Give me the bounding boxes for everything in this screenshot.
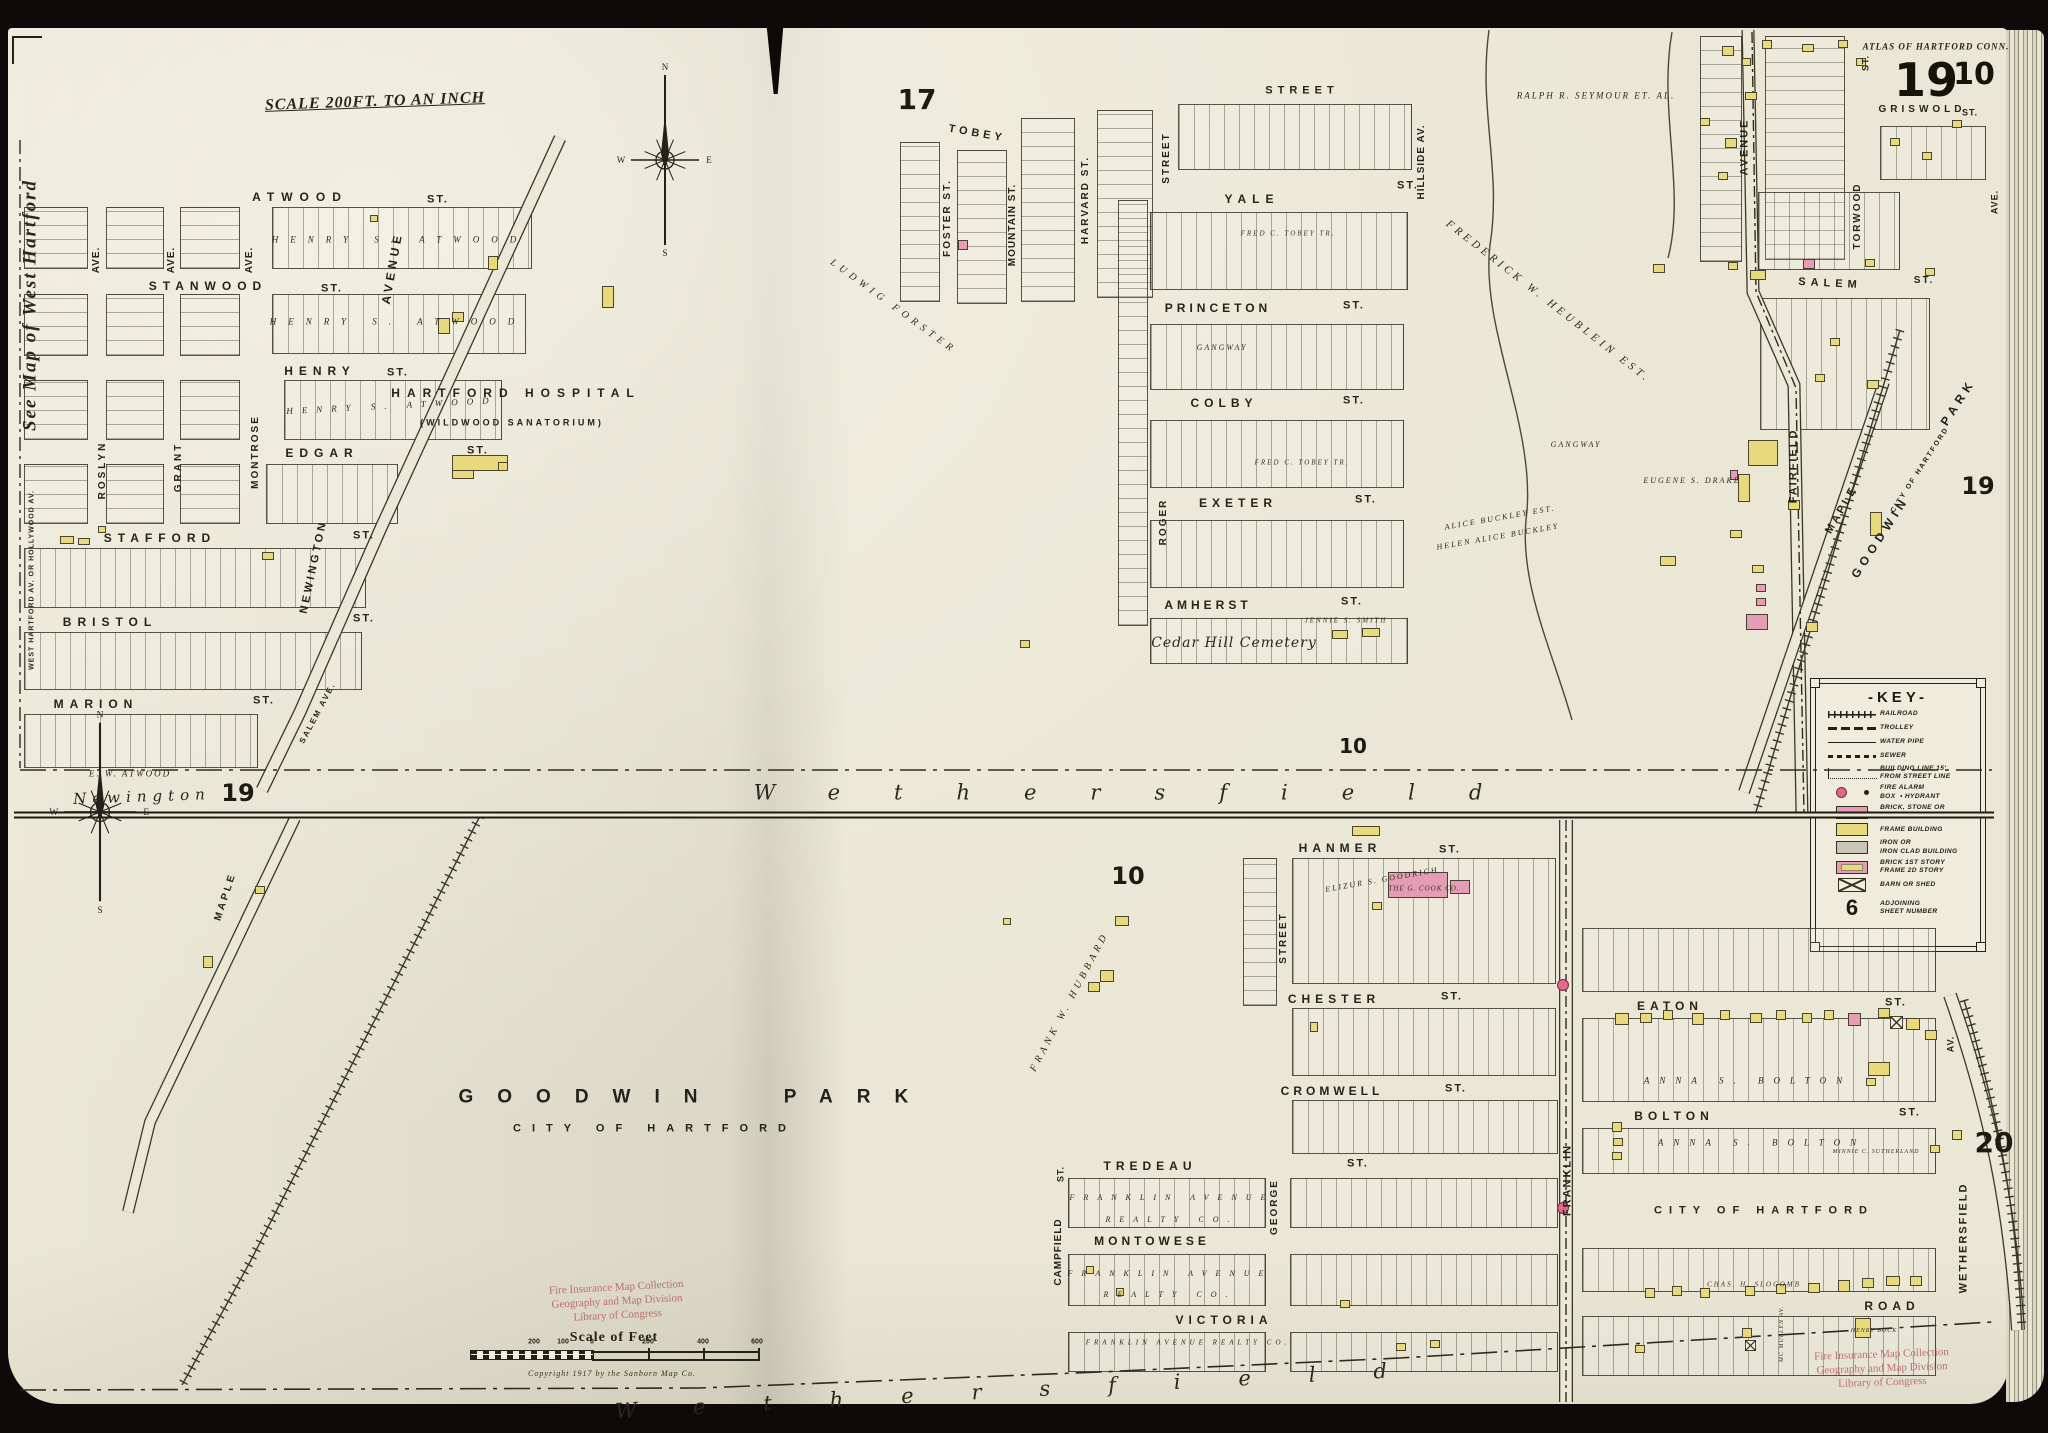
frame-building [1750,270,1766,280]
frame-building [1722,46,1734,56]
street-label: ST. [1445,1084,1467,1095]
frame-building [255,886,265,894]
map-label: WEST HARTFORD AV. OR HOLLYWOOD AV. [29,490,36,670]
brook-stream [1486,30,1572,720]
street-label: GEORGE [1270,1179,1280,1235]
street-label: FAIRFIELD [1789,429,1800,504]
street-label: MONTOWESE [1094,1235,1210,1247]
owner-label: REALTY CO. [1106,1216,1239,1224]
street-label: ST. [1343,396,1365,407]
frame-building [1615,1013,1629,1025]
street-label: ST. [253,696,275,707]
map-label: CITY OF HARTFORD [513,1124,797,1135]
frame-building [1925,1030,1937,1040]
frame-building [1100,970,1114,982]
frame-building [1742,58,1751,66]
frame-building [1745,92,1757,100]
scale-bar-number: 200 [528,1339,540,1346]
frame-building [1640,1013,1652,1023]
frame-building [1340,1300,1350,1308]
street-label: ROSLYN [98,441,108,500]
svg-text:E: E [143,808,149,818]
street-label: AVE. [92,247,102,274]
owner-label: MC MULLEN AV. [1779,1306,1785,1362]
owner-label: FRANKLIN AVENUE [1068,1270,1273,1278]
owner-label: Copyright 1917 by the Sanborn Map Co. [528,1370,696,1378]
frame-building [1750,1013,1762,1023]
frame-building [1115,916,1129,926]
scale-bar-number: 400 [697,1339,709,1346]
brick-building [1756,598,1766,606]
frame-building [262,552,274,560]
street-label: MOUNTAIN ST. [1008,184,1018,266]
frame-building [1952,120,1962,128]
frame-building [1725,138,1737,148]
frame-building [452,470,474,479]
frame-building [370,215,378,222]
frame-building [1730,530,1742,538]
frame-building [1660,556,1676,566]
frame-building [1802,1013,1812,1023]
frame-building [1862,1278,1874,1288]
street-label: ST. [321,284,343,295]
owner-label: HENRY BOCK [1851,1328,1897,1334]
street-label: ST. [1914,276,1934,286]
frame-building [1653,264,1665,273]
library-of-congress-stamp: Fire Insurance Map CollectionGeography a… [549,1278,686,1326]
frame-building [1700,1288,1710,1298]
frame-building [203,956,213,968]
frame-building [1003,918,1011,925]
street-label: FRANKLIN [1563,1144,1574,1216]
svg-text:W: W [617,155,626,165]
scale-bar-number: 600 [751,1339,763,1346]
svg-text:N: N [97,711,104,721]
street-label: HANMER [1299,842,1382,854]
map-label: GOODWIN [459,1088,722,1107]
street-label: EDGAR [285,447,358,459]
frame-building [1906,1018,1920,1030]
road-surface [128,818,295,1212]
map-label: PARK [784,1088,932,1107]
street-label: AVE. [245,247,255,274]
street-label: HILLSIDE AV. [1417,125,1427,200]
street-label: AMHERST [1164,599,1251,611]
town-label: Wethersfield [754,783,1537,804]
street-label: CAMPFIELD [1054,1218,1064,1285]
frame-building [1838,1280,1850,1292]
frame-building [1878,1008,1890,1018]
map-label: 10 [1953,60,1995,90]
street-label: ST. [1962,109,1978,118]
frame-building [1838,40,1848,48]
street-label: CHESTER [1288,993,1380,1005]
street-label: AVE. [167,247,177,274]
frame-building [1612,1152,1622,1160]
street-label: HENRY [284,365,356,377]
frame-building [1830,338,1840,346]
frame-building [1020,640,1030,648]
frame-building [1613,1138,1623,1146]
map-linework: NSEWNSEW [0,0,2048,1433]
map-label: 19 [221,781,254,805]
frame-building [1728,262,1738,270]
street-label: EXETER [1199,497,1277,509]
frame-building [1802,44,1814,52]
owner-label: FRANKLIN AVENUE [1070,1194,1275,1202]
frame-building [1645,1288,1655,1298]
owner-label: JENNIE S. SMITH [1305,618,1388,625]
frame-building [1352,826,1380,836]
frame-building [1886,1276,1900,1286]
street-label: AVE. [1991,190,2000,214]
frame-building [1748,440,1778,466]
street-label: ST. [427,195,449,206]
street-label: ST. [1347,1159,1369,1170]
railroad-line [1756,330,1900,812]
street-label: COLBY [1191,397,1258,409]
street-label: STREET [1265,86,1338,97]
frame-building [498,462,508,471]
fire-alarm-box-symbol [1557,979,1569,991]
street-label: BOLTON [1634,1110,1714,1122]
street-label: ST. [1862,55,1871,71]
frame-building [1362,628,1380,637]
brook-stream [1668,32,1674,258]
brick-building [1803,259,1815,269]
street-label: ST. [1343,301,1365,312]
street-label: ST. [387,368,409,379]
street-label: STREET [1162,132,1172,183]
frame-building [1922,152,1932,160]
owner-label: FRANKLIN AVENUE REALTY CO. [1086,1340,1291,1347]
map-label: 19 [1961,474,1994,498]
owner-label: FRED C. TOBEY TR. [1241,231,1336,238]
street-label: GRANT [174,442,184,493]
frame-building [60,536,74,544]
frame-building [1866,1078,1876,1086]
owner-label: E. W. ATWOOD [89,770,171,779]
frame-building [1430,1340,1440,1348]
scale-bar-number: 0 [590,1339,594,1346]
svg-text:N: N [662,62,669,72]
owner-label: GANGWAY [1197,344,1248,352]
svg-text:W: W [49,808,58,818]
street-label: ST. [1885,998,1907,1009]
street-label: MARION [54,698,139,710]
frame-building [1700,118,1710,126]
owner-label: ANNA S. BOLTON [1644,1077,1852,1086]
barn-or-shed [1745,1340,1756,1351]
frame-building [1088,982,1100,992]
frame-building [1752,565,1764,573]
map-canvas: -KEY- RAILROADTROLLEYWATER PIPESEWERBUIL… [0,0,2048,1433]
map-label: (WILDWOOD SANATORIUM) [420,419,604,428]
street-label: ST. [353,531,375,542]
street-label: TORWOOD [1853,183,1863,250]
owner-label: RALPH R. SEYMOUR ET. AL. [1517,92,1675,101]
library-of-congress-stamp: Fire Insurance Map CollectionGeography a… [1814,1346,1950,1392]
map-label: 17 [898,86,937,114]
owner-label: HENRY S. ATWOOD [272,236,529,245]
owner-label: THE G. COOK CO. [1388,886,1459,893]
street-label: EATON [1637,1000,1703,1012]
frame-building [1612,1122,1622,1132]
barn-or-shed [1890,1016,1903,1029]
frame-building [1868,1062,1890,1076]
brick-building [1848,1013,1861,1026]
frame-building [1952,1130,1962,1140]
owner-label: FRED C. TOBEY TR. [1255,460,1350,467]
street-label: ST. [1441,992,1463,1003]
frame-building [1808,1283,1820,1293]
frame-building [1890,138,1900,146]
map-label: 10 [1339,736,1367,756]
owner-label: EUGENE S. DRAKE [1643,477,1740,485]
street-label: BRISTOL [63,616,157,628]
owner-label: GANGWAY [1551,441,1602,449]
map-label: ATLAS OF HARTFORD CONN. [1863,43,2010,52]
frame-building [1910,1276,1922,1286]
street-label: AVENUE [1740,118,1751,175]
frame-building [1310,1022,1318,1032]
street-label: ST. [1899,1108,1921,1119]
town-label: Cedar Hill Cemetery [1151,636,1317,650]
street-label: ROAD [1864,1300,1919,1312]
svg-text:E: E [706,155,712,165]
owner-label: MINNIE C. SUTHERLAND [1833,1149,1920,1155]
frame-building [1718,172,1728,180]
street-label: ROGER [1159,499,1169,546]
street-label: CROMWELL [1281,1085,1384,1097]
frame-building [1672,1286,1682,1296]
street-label: ST. [1439,845,1461,856]
street-label: PRINCETON [1165,302,1271,314]
map-label: 20 [1975,1129,2014,1157]
frame-building [1806,622,1818,632]
street-label: ST. [1057,1166,1066,1182]
frame-building [1865,259,1875,267]
frame-building [1692,1013,1704,1025]
street-label: ST. [467,446,489,457]
street-label: ST. [1341,597,1363,608]
frame-building [1776,1010,1786,1020]
street-label: STANWOOD [149,280,267,292]
map-label: 19 [1894,57,1958,103]
frame-building [1742,1328,1752,1338]
street-label: STAFFORD [104,532,216,544]
map-label: See Map of West Hartford [21,179,40,431]
map-label: CITY OF HARTFORD [1654,1206,1874,1217]
frame-building [1815,374,1825,382]
frame-building [78,538,90,545]
street-label: YALE [1225,193,1280,205]
svg-text:S: S [662,248,667,258]
street-label: STREET [1279,912,1289,963]
frame-building [1396,1343,1406,1351]
frame-building [1635,1345,1645,1353]
owner-label: REALTY CO. [1104,1291,1237,1299]
svg-text:S: S [97,906,102,916]
map-label: 10 [1111,864,1144,888]
frame-building [1762,40,1772,49]
map-label: HARTFORD HOSPITAL [391,387,640,399]
brick-building [1756,584,1766,592]
street-label: AV. [1947,1036,1956,1053]
frame-building [1824,1010,1834,1020]
street-label: ST. [353,614,375,625]
frame-building [1372,902,1382,910]
brick-building [958,240,968,250]
street-label: MONTROSE [251,415,261,489]
brick-building [1746,614,1768,630]
street-label: WETHERSFIELD [1959,1183,1970,1294]
street-label: ATWOOD [252,191,348,203]
frame-building [1720,1010,1730,1020]
street-label: ST. [1355,495,1377,506]
compass-rose-icon: NSEW [617,62,713,258]
frame-building [602,286,614,308]
street-label: VICTORIA [1175,1314,1272,1326]
frame-building [1867,380,1879,389]
scale-bar-number: 100 [557,1339,569,1346]
street-label: HARVARD ST. [1081,156,1091,244]
street-label: FOSTER ST. [943,179,953,257]
owner-label: CHAS. H. SLOCOMB [1707,1282,1801,1289]
frame-building [1930,1145,1940,1153]
owner-label: ANNA S. BOLTON [1658,1139,1866,1148]
owner-label: HENRY S. ATWOOD [270,318,527,327]
scale-bar-number: 200 [642,1339,654,1346]
street-label: TREDEAU [1103,1160,1196,1172]
frame-building [1332,630,1348,639]
frame-building [488,256,498,270]
